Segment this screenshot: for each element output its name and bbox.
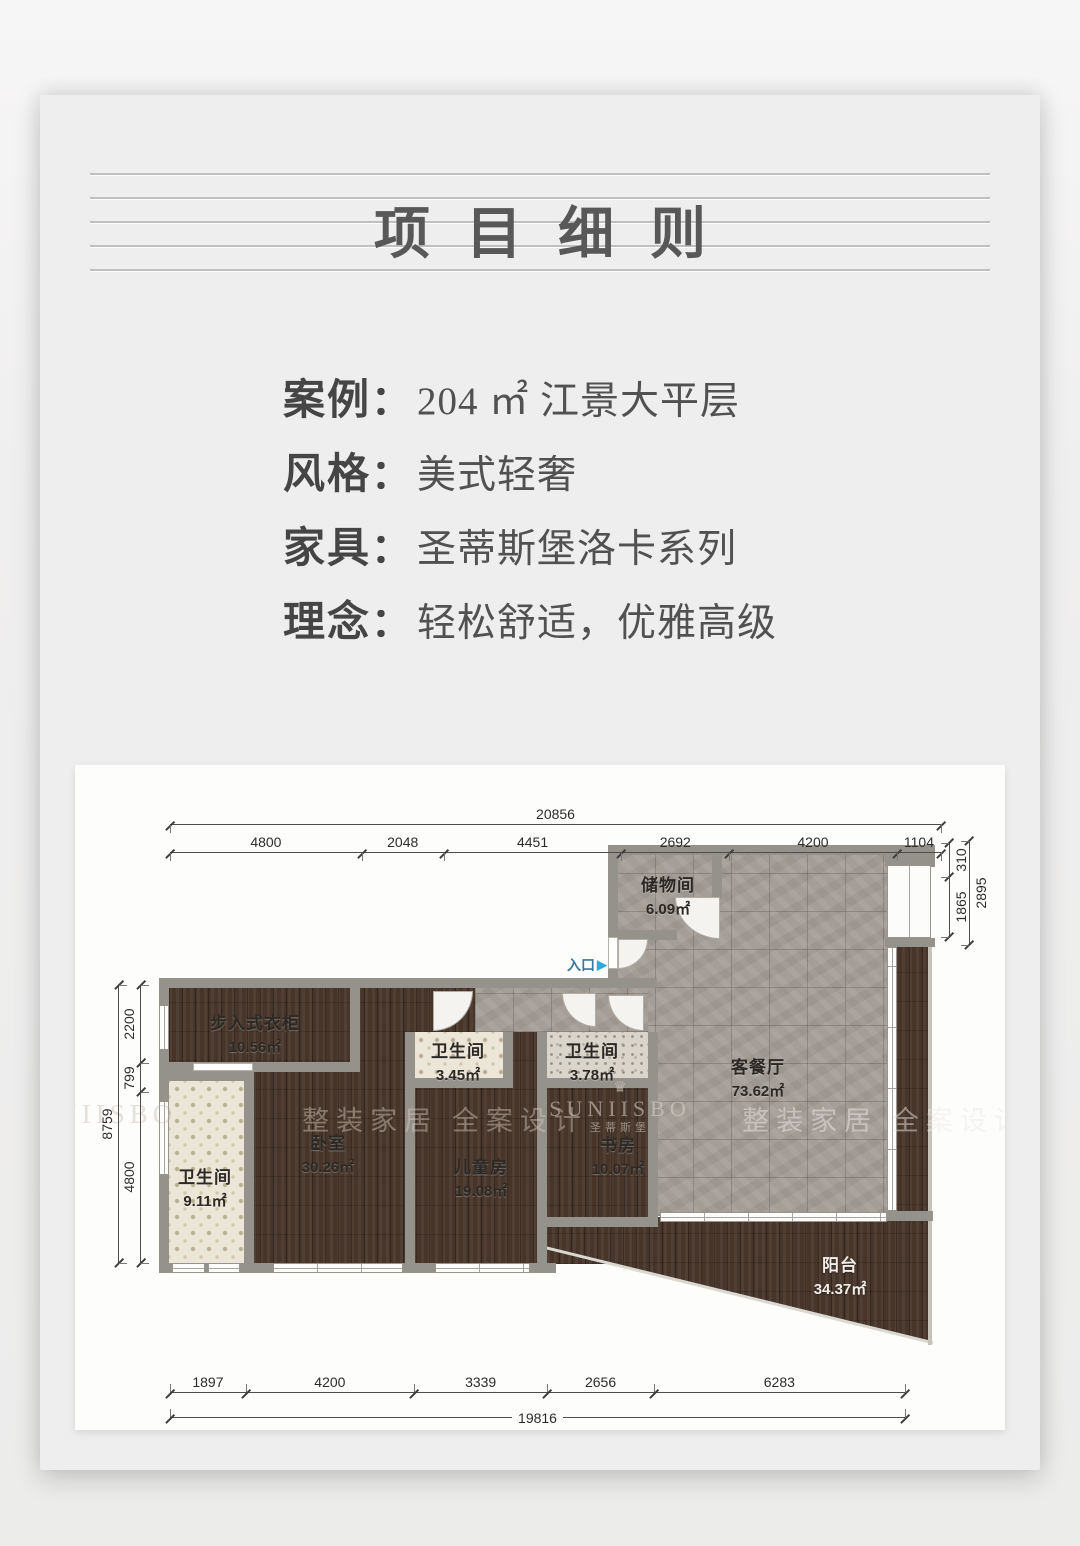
wall	[885, 938, 935, 947]
entrance-opening	[608, 937, 618, 969]
room-label-living: 客餐厅73.62㎡	[683, 1053, 833, 1101]
info-value: 轻松舒适，优雅高级	[417, 592, 777, 648]
dimension-top-segments: 480020484451269242001104	[170, 833, 941, 853]
window	[660, 1212, 887, 1222]
dimension-right-segments: 3101865	[949, 843, 969, 937]
room-label-bath-right: 卫生间3.78㎡	[517, 1037, 667, 1085]
info-row-style: 风格：美式轻奢	[283, 440, 777, 514]
room-label-bath-mid: 卫生间3.45㎡	[383, 1037, 533, 1085]
wall-study	[547, 1217, 658, 1227]
info-label: 风格	[283, 440, 371, 501]
entrance-text: 入口	[567, 955, 595, 975]
info-value: 204 ㎡ 江景大平层	[417, 370, 740, 426]
page-title: 项目细则	[0, 189, 1080, 270]
dimension-left-total: 8759	[99, 985, 119, 1263]
info-value: 美式轻奢	[417, 444, 577, 500]
room-label-storage: 储物间6.09㎡	[593, 871, 743, 919]
room-label-balcony: 阳台34.37㎡	[765, 1251, 915, 1299]
window	[887, 947, 897, 1211]
room-label-kids: 儿童房19.08㎡	[406, 1153, 556, 1201]
info-label: 家具	[283, 514, 371, 575]
decor-line	[90, 173, 990, 175]
wall-bath-left	[169, 1071, 254, 1081]
project-info: 案例：204 ㎡ 江景大平层 风格：美式轻奢 家具：圣蒂斯堡洛卡系列 理念：轻松…	[283, 366, 777, 662]
wall	[159, 978, 657, 988]
dimension-top-total: 20856	[170, 805, 941, 825]
floor-plan: 入口 ▶ SUNIISBO 整装家居 全案设计 ♛ SUNIISBO 圣蒂斯堡 …	[75, 765, 1005, 1430]
room-label-study: 书房10.07㎡	[543, 1131, 693, 1179]
info-separator: ：	[371, 590, 411, 648]
info-row-case: 案例：204 ㎡ 江景大平层	[283, 366, 777, 440]
window	[159, 1005, 169, 1050]
window	[208, 1263, 240, 1273]
dimension-bottom-segments: 18974200333926566283	[170, 1373, 905, 1393]
dimension-bottom-total: 19816	[170, 1398, 905, 1418]
closet-sliding-door	[193, 1063, 253, 1071]
room-label-bedroom: 卧室30.26㎡	[253, 1129, 403, 1177]
dimension-left-segments: 22007994800	[121, 985, 141, 1263]
info-separator: ：	[371, 516, 411, 574]
info-value: 圣蒂斯堡洛卡系列	[417, 518, 737, 574]
room-label-closet: 步入式衣柜10.56㎡	[180, 1009, 330, 1057]
info-label: 理念	[283, 588, 371, 649]
info-separator: ：	[371, 442, 411, 500]
info-label: 案例	[283, 366, 371, 427]
dimension-right-total: 2895	[969, 841, 989, 945]
info-separator: ：	[371, 368, 411, 426]
bay-window	[887, 865, 931, 938]
window	[172, 1263, 205, 1273]
wall-closet	[350, 988, 360, 1072]
info-row-furniture: 家具：圣蒂斯堡洛卡系列	[283, 514, 777, 588]
window	[273, 1263, 403, 1273]
window	[435, 1263, 530, 1273]
wall	[885, 1211, 933, 1221]
poster-page: 项目细则 案例：204 ㎡ 江景大平层 风格：美式轻奢 家具：圣蒂斯堡洛卡系列 …	[0, 0, 1080, 1546]
entrance-label: 入口 ▶	[567, 955, 607, 975]
balcony-railing-right	[928, 945, 932, 1345]
entrance-arrow-icon: ▶	[597, 957, 607, 973]
info-row-concept: 理念：轻松舒适，优雅高级	[283, 588, 777, 662]
